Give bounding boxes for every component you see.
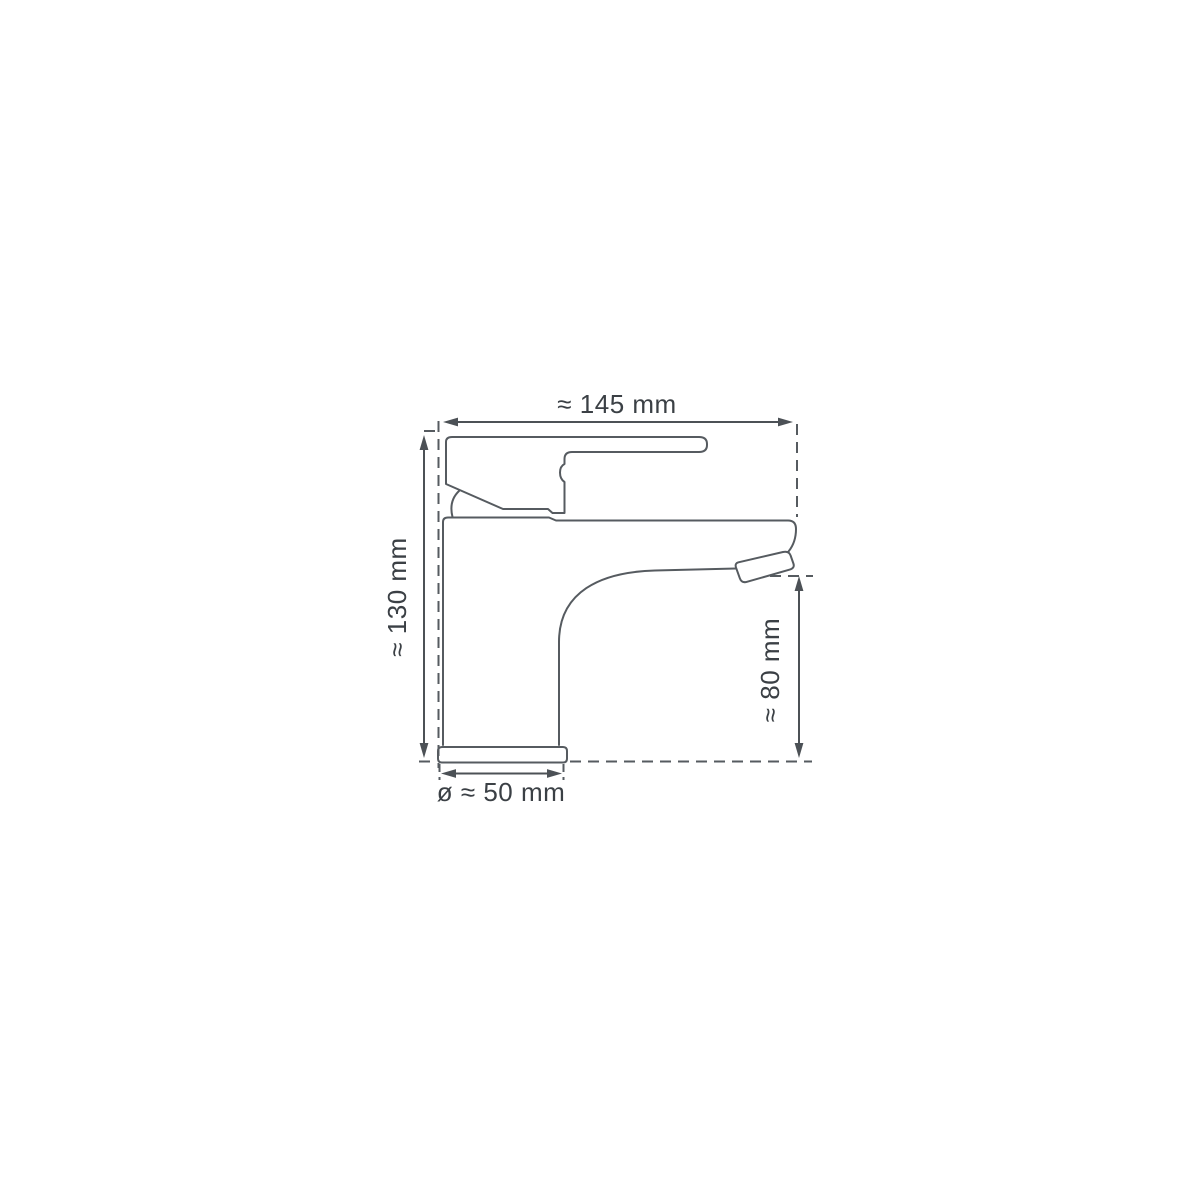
spout-height-dimension-label: ≈ 80 mm: [755, 618, 785, 722]
faucet-handle-front-arc: [451, 491, 459, 517]
extension-lines: [419, 421, 813, 780]
height-dimension-label: ≈ 130 mm: [382, 537, 412, 656]
faucet-spout-nozzle: [736, 552, 794, 582]
width-dimension-label: ≈ 145 mm: [557, 389, 676, 419]
faucet-handle: [446, 437, 707, 513]
height-arrow-top: [420, 435, 429, 450]
faucet-body-and-spout: [443, 518, 796, 746]
dimension-lines: [420, 418, 804, 778]
diagram-canvas: ≈ 145 mm ≈ 130 mm ≈ 80 mm ø ≈ 50 mm: [0, 0, 1200, 1200]
spout-height-arrow-bottom: [795, 743, 804, 758]
base-diameter-dimension-label: ø ≈ 50 mm: [437, 777, 566, 807]
faucet-spout-underside: [559, 569, 736, 746]
faucet-base: [438, 747, 567, 763]
spout-height-arrow-top: [795, 576, 804, 591]
width-arrow-right: [778, 418, 793, 427]
height-arrow-bottom: [420, 743, 429, 758]
width-arrow-left: [443, 418, 458, 427]
faucet-outline: [438, 437, 796, 763]
faucet-technical-drawing: ≈ 145 mm ≈ 130 mm ≈ 80 mm ø ≈ 50 mm: [0, 0, 1200, 1200]
